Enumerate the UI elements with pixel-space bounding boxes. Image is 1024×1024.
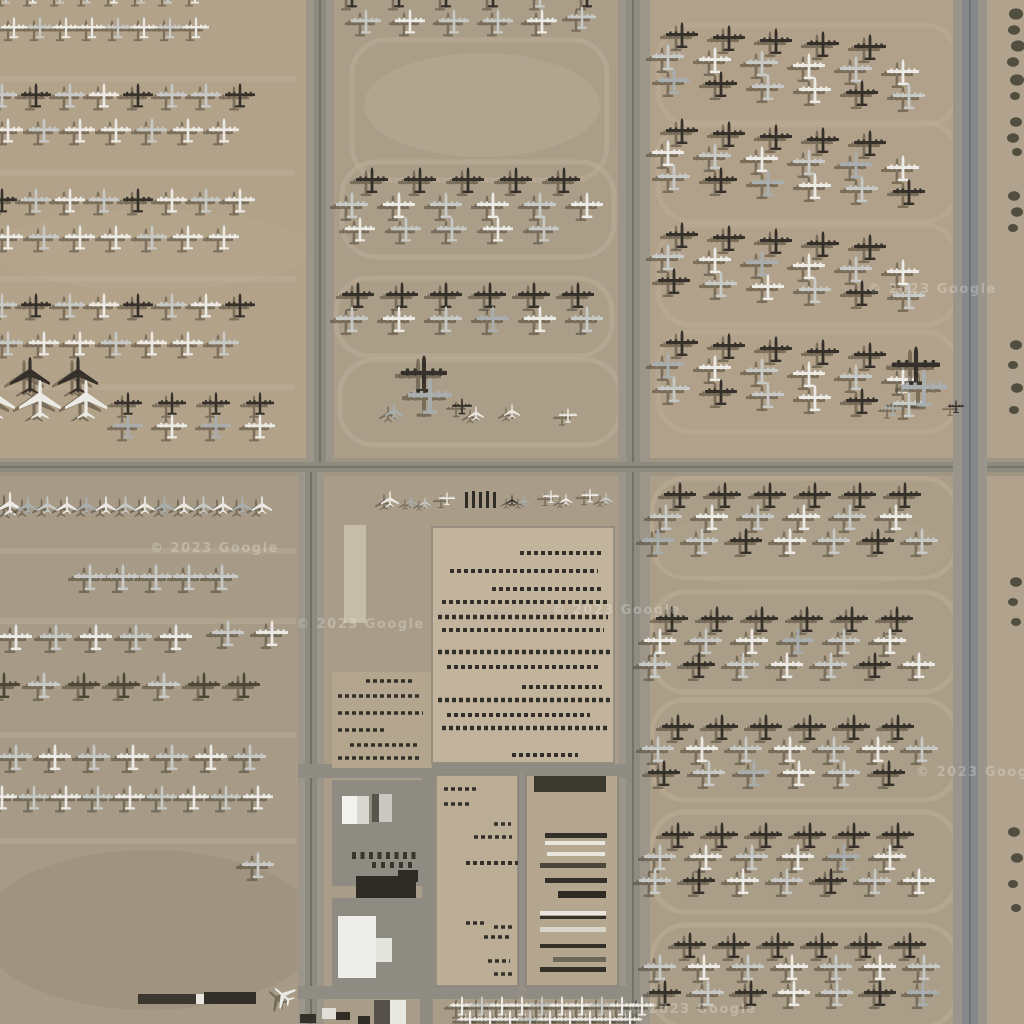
building [376,938,392,962]
stored-materiel-stack [138,994,200,1004]
concrete-pad [332,672,432,768]
stored-materiel-stack [545,878,607,883]
road [969,0,971,1024]
google-watermark: © 2023 Google [628,1002,757,1017]
dirt-track [0,76,295,82]
parked-vehicle [408,862,412,868]
stored-materiel-stack [545,833,607,838]
stored-materiel-stack [540,863,606,868]
building [300,1014,316,1023]
parked-vehicle [412,852,416,859]
stored-materiel-stack [534,776,606,792]
stored-materiel-stack [540,911,606,915]
building [374,1000,390,1024]
stored-materiel-stack [336,1012,350,1020]
fenced-yard [436,775,518,986]
parked-vehicle [361,852,365,859]
road [310,472,312,1024]
building [372,794,379,822]
dirt-track [0,384,295,390]
building [398,870,418,882]
stored-materiel-stack [540,927,606,932]
parked-vehicle [369,852,373,859]
desert-bush [1011,618,1021,626]
google-watermark: © 2023 Google [150,541,279,556]
parked-vehicle [390,862,394,868]
concrete-pad [344,525,366,623]
road [632,472,634,1024]
stored-materiel-stack [479,492,482,508]
desert-bush [1011,853,1023,863]
stored-materiel-stack [465,492,468,508]
stored-materiel-stack [486,491,489,508]
desert-bush [1008,25,1020,35]
ground-tone-patch [364,53,600,157]
parked-vehicle [381,862,385,868]
desert-bush [1011,904,1021,912]
desert-bush [1008,880,1018,888]
stored-materiel-stack [493,492,496,508]
stored-materiel-stack [545,841,605,845]
desert-bush [1010,117,1022,127]
parked-vehicle [378,852,382,859]
parked-vehicle [372,862,376,868]
desert-bush [1011,207,1023,217]
road [632,0,634,462]
satellite-map-viewport[interactable]: © 2023 Google© 2023 Google© 2023 Google©… [0,0,1024,1024]
google-watermark: © 2023 Google [296,617,425,632]
dirt-track [0,170,295,176]
google-watermark: © 2023 Google [916,765,1024,780]
desert-bush [1010,92,1020,100]
google-watermark: © 2023 Google [552,603,681,618]
stored-materiel-stack [547,852,605,856]
road [319,0,321,462]
desert-bush [1009,406,1019,414]
desert-bush [1007,57,1019,67]
desert-bush [1010,74,1024,85]
stored-materiel-stack [558,891,606,898]
building [390,1000,406,1024]
desert-bush [1010,340,1022,350]
google-watermark: © 2023 Google [868,282,997,297]
road [420,986,433,1024]
building [338,916,376,978]
desert-bush [1011,383,1023,393]
desert-bush [1012,148,1022,156]
stored-materiel-stack [196,994,204,1004]
parked-vehicle [403,852,407,859]
building [342,796,357,824]
desert-bush [1008,191,1020,201]
desert-bush [1008,598,1018,606]
stored-materiel-stack [540,944,606,948]
desert-bush [1007,133,1019,143]
desert-bush [1008,224,1018,232]
parked-vehicle [395,852,399,859]
desert-bush [1010,577,1022,587]
desert-bush [1009,8,1023,19]
dirt-track [0,732,296,738]
desert-bush [1008,361,1018,369]
satellite-image[interactable]: © 2023 Google© 2023 Google© 2023 Google©… [0,0,1024,1024]
building [322,1008,336,1019]
stored-materiel-stack [540,916,606,919]
road [0,466,1024,468]
stored-materiel-stack [540,967,606,972]
dirt-track [0,838,296,844]
building [357,796,369,824]
parked-vehicle [386,852,390,859]
dirt-track [0,276,295,282]
dirt-track [0,618,296,624]
stored-materiel-stack [358,1016,370,1024]
stored-materiel-stack [204,992,256,1004]
stored-materiel-stack [553,957,606,962]
parked-vehicle [352,852,356,859]
stored-materiel-stack [472,491,475,508]
parked-vehicle [399,862,403,868]
desert-bush [1008,827,1020,837]
